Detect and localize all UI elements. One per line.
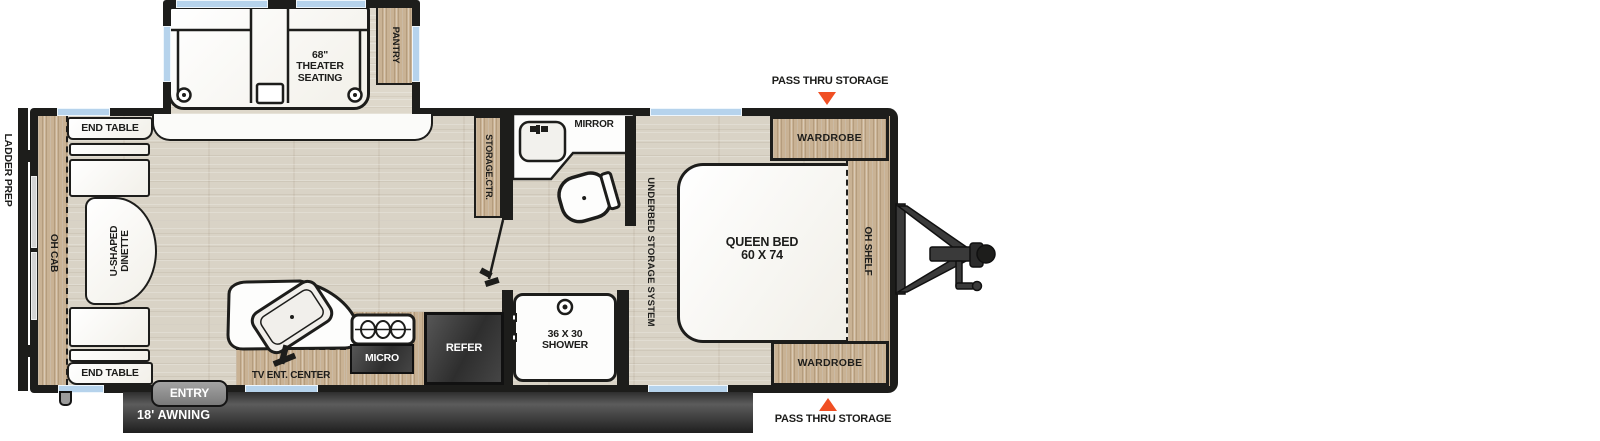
- pass-thru-bottom-label: PASS THRU STORAGE: [750, 412, 916, 427]
- pantry-label: PANTRY: [387, 5, 403, 85]
- end-table-top-label: END TABLE: [67, 117, 153, 140]
- shower-label: 36 X 30 SHOWER: [515, 326, 615, 354]
- bathroom-wall: [625, 116, 636, 226]
- queen-bed-label: QUEEN BED 60 X 74: [687, 234, 837, 264]
- pass-thru-top-label: PASS THRU STORAGE: [747, 74, 913, 89]
- theater-label: 68" THEATER SEATING: [275, 40, 365, 94]
- storage-ctr-label: STORAGE.CTR.: [480, 112, 496, 222]
- entry-label: ENTRY: [151, 380, 228, 407]
- tv-ent-center-label: TV ENT. CENTER: [234, 369, 348, 383]
- dinette-label: U-SHAPED DINETTE: [109, 206, 133, 296]
- shower-wall: [617, 290, 629, 385]
- hitch-icon: [896, 204, 995, 294]
- refer-label: REFER: [424, 312, 504, 385]
- toilet-icon: [555, 167, 621, 226]
- door-swing-icon: [479, 220, 503, 287]
- pass-thru-arrow-bottom: [819, 398, 837, 411]
- stabilizer-tab: [59, 391, 72, 406]
- wardrobe-bottom-label: WARDROBE: [771, 341, 889, 386]
- bathroom-wall: [502, 116, 513, 220]
- cooktop-icon: [352, 315, 414, 344]
- oh-shelf-label: OH SHELF: [859, 208, 875, 294]
- rv-floorplan: LADDER PREP: [0, 0, 1600, 441]
- underbed-storage-label: UNDERBED STORAGE SYSTEM: [642, 157, 658, 347]
- mirror-label: MIRROR: [566, 119, 622, 132]
- wardrobe-top-label: WARDROBE: [770, 116, 889, 161]
- oh-cab-label: OH CAB: [45, 208, 61, 298]
- micro-label: MICRO: [350, 344, 414, 374]
- end-table-bottom-label: END TABLE: [67, 362, 153, 385]
- pass-thru-arrow-top: [818, 92, 836, 105]
- awning-label: 18' AWNING: [137, 408, 247, 424]
- kitchen-counter: [228, 278, 359, 367]
